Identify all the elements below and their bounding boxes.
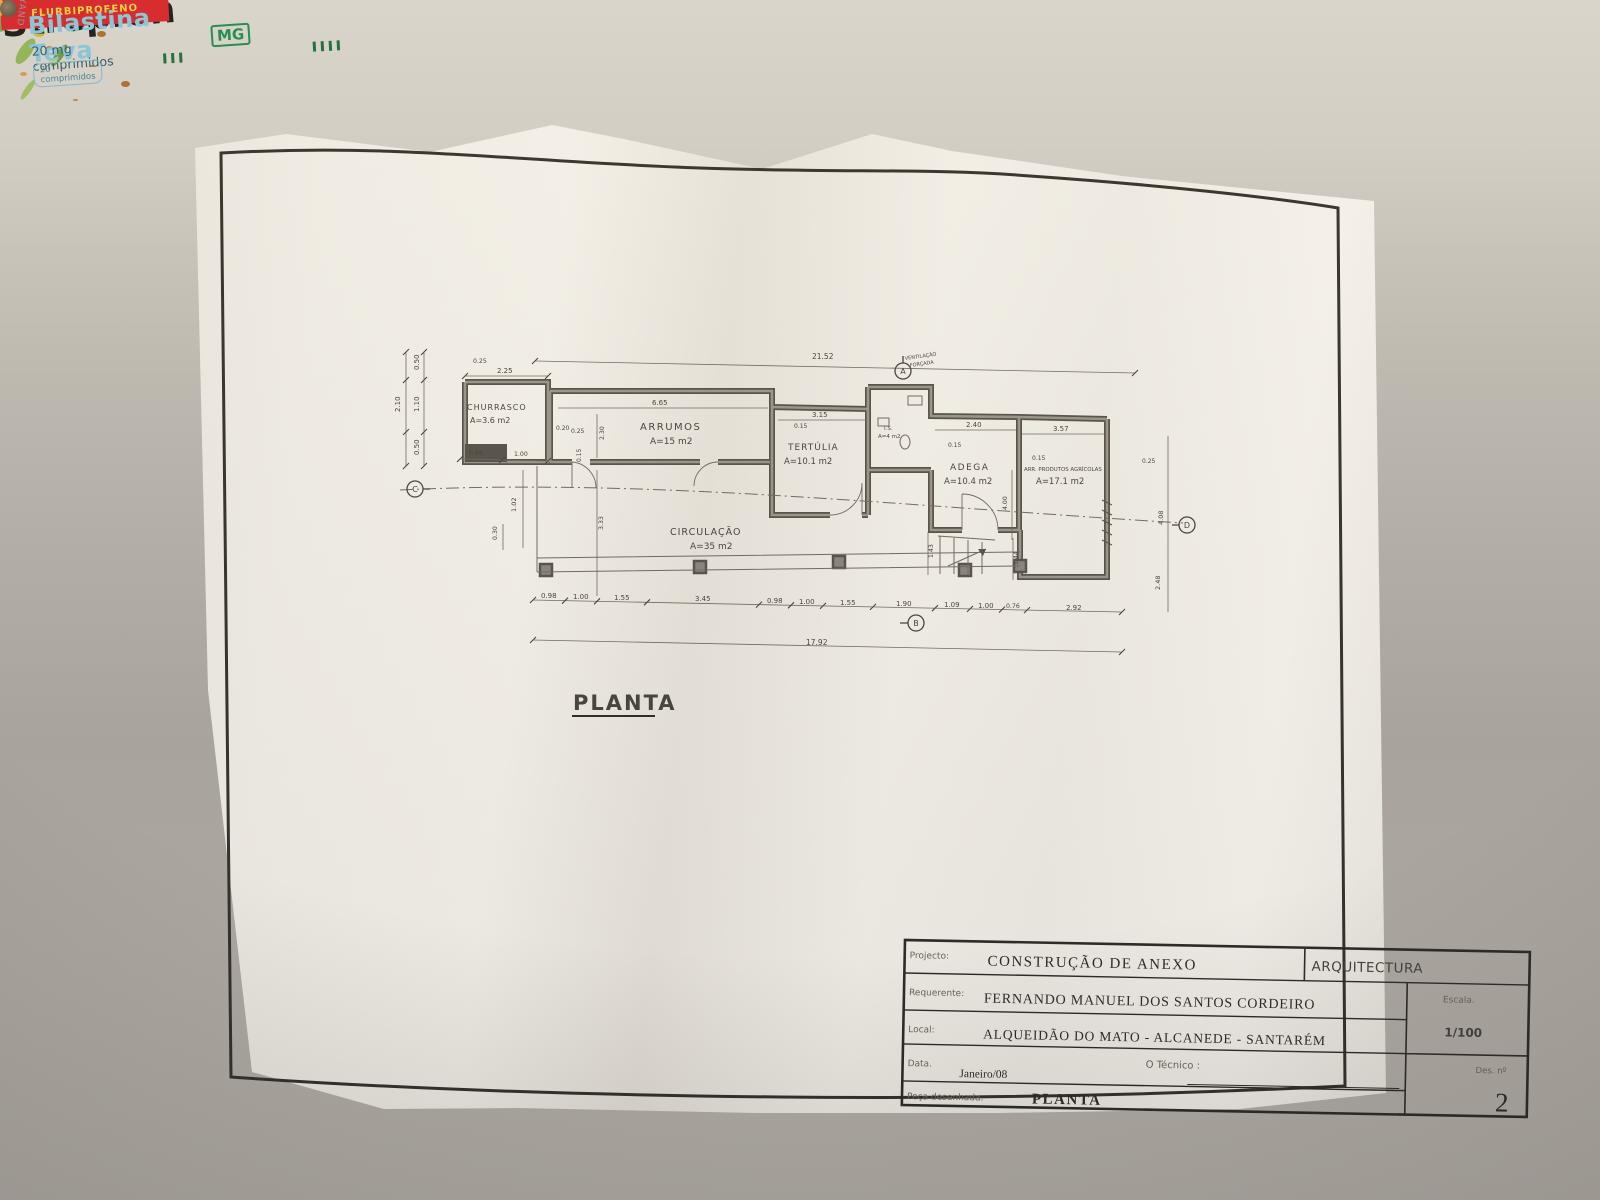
mg-logo: MG	[210, 23, 251, 48]
photo-of-floor-plan: 21.52 17.92 2.25 6.65 3.15 2.40 3.57 0.9…	[0, 0, 1600, 1200]
bilastina-count: 20 comprimidos	[33, 59, 104, 88]
